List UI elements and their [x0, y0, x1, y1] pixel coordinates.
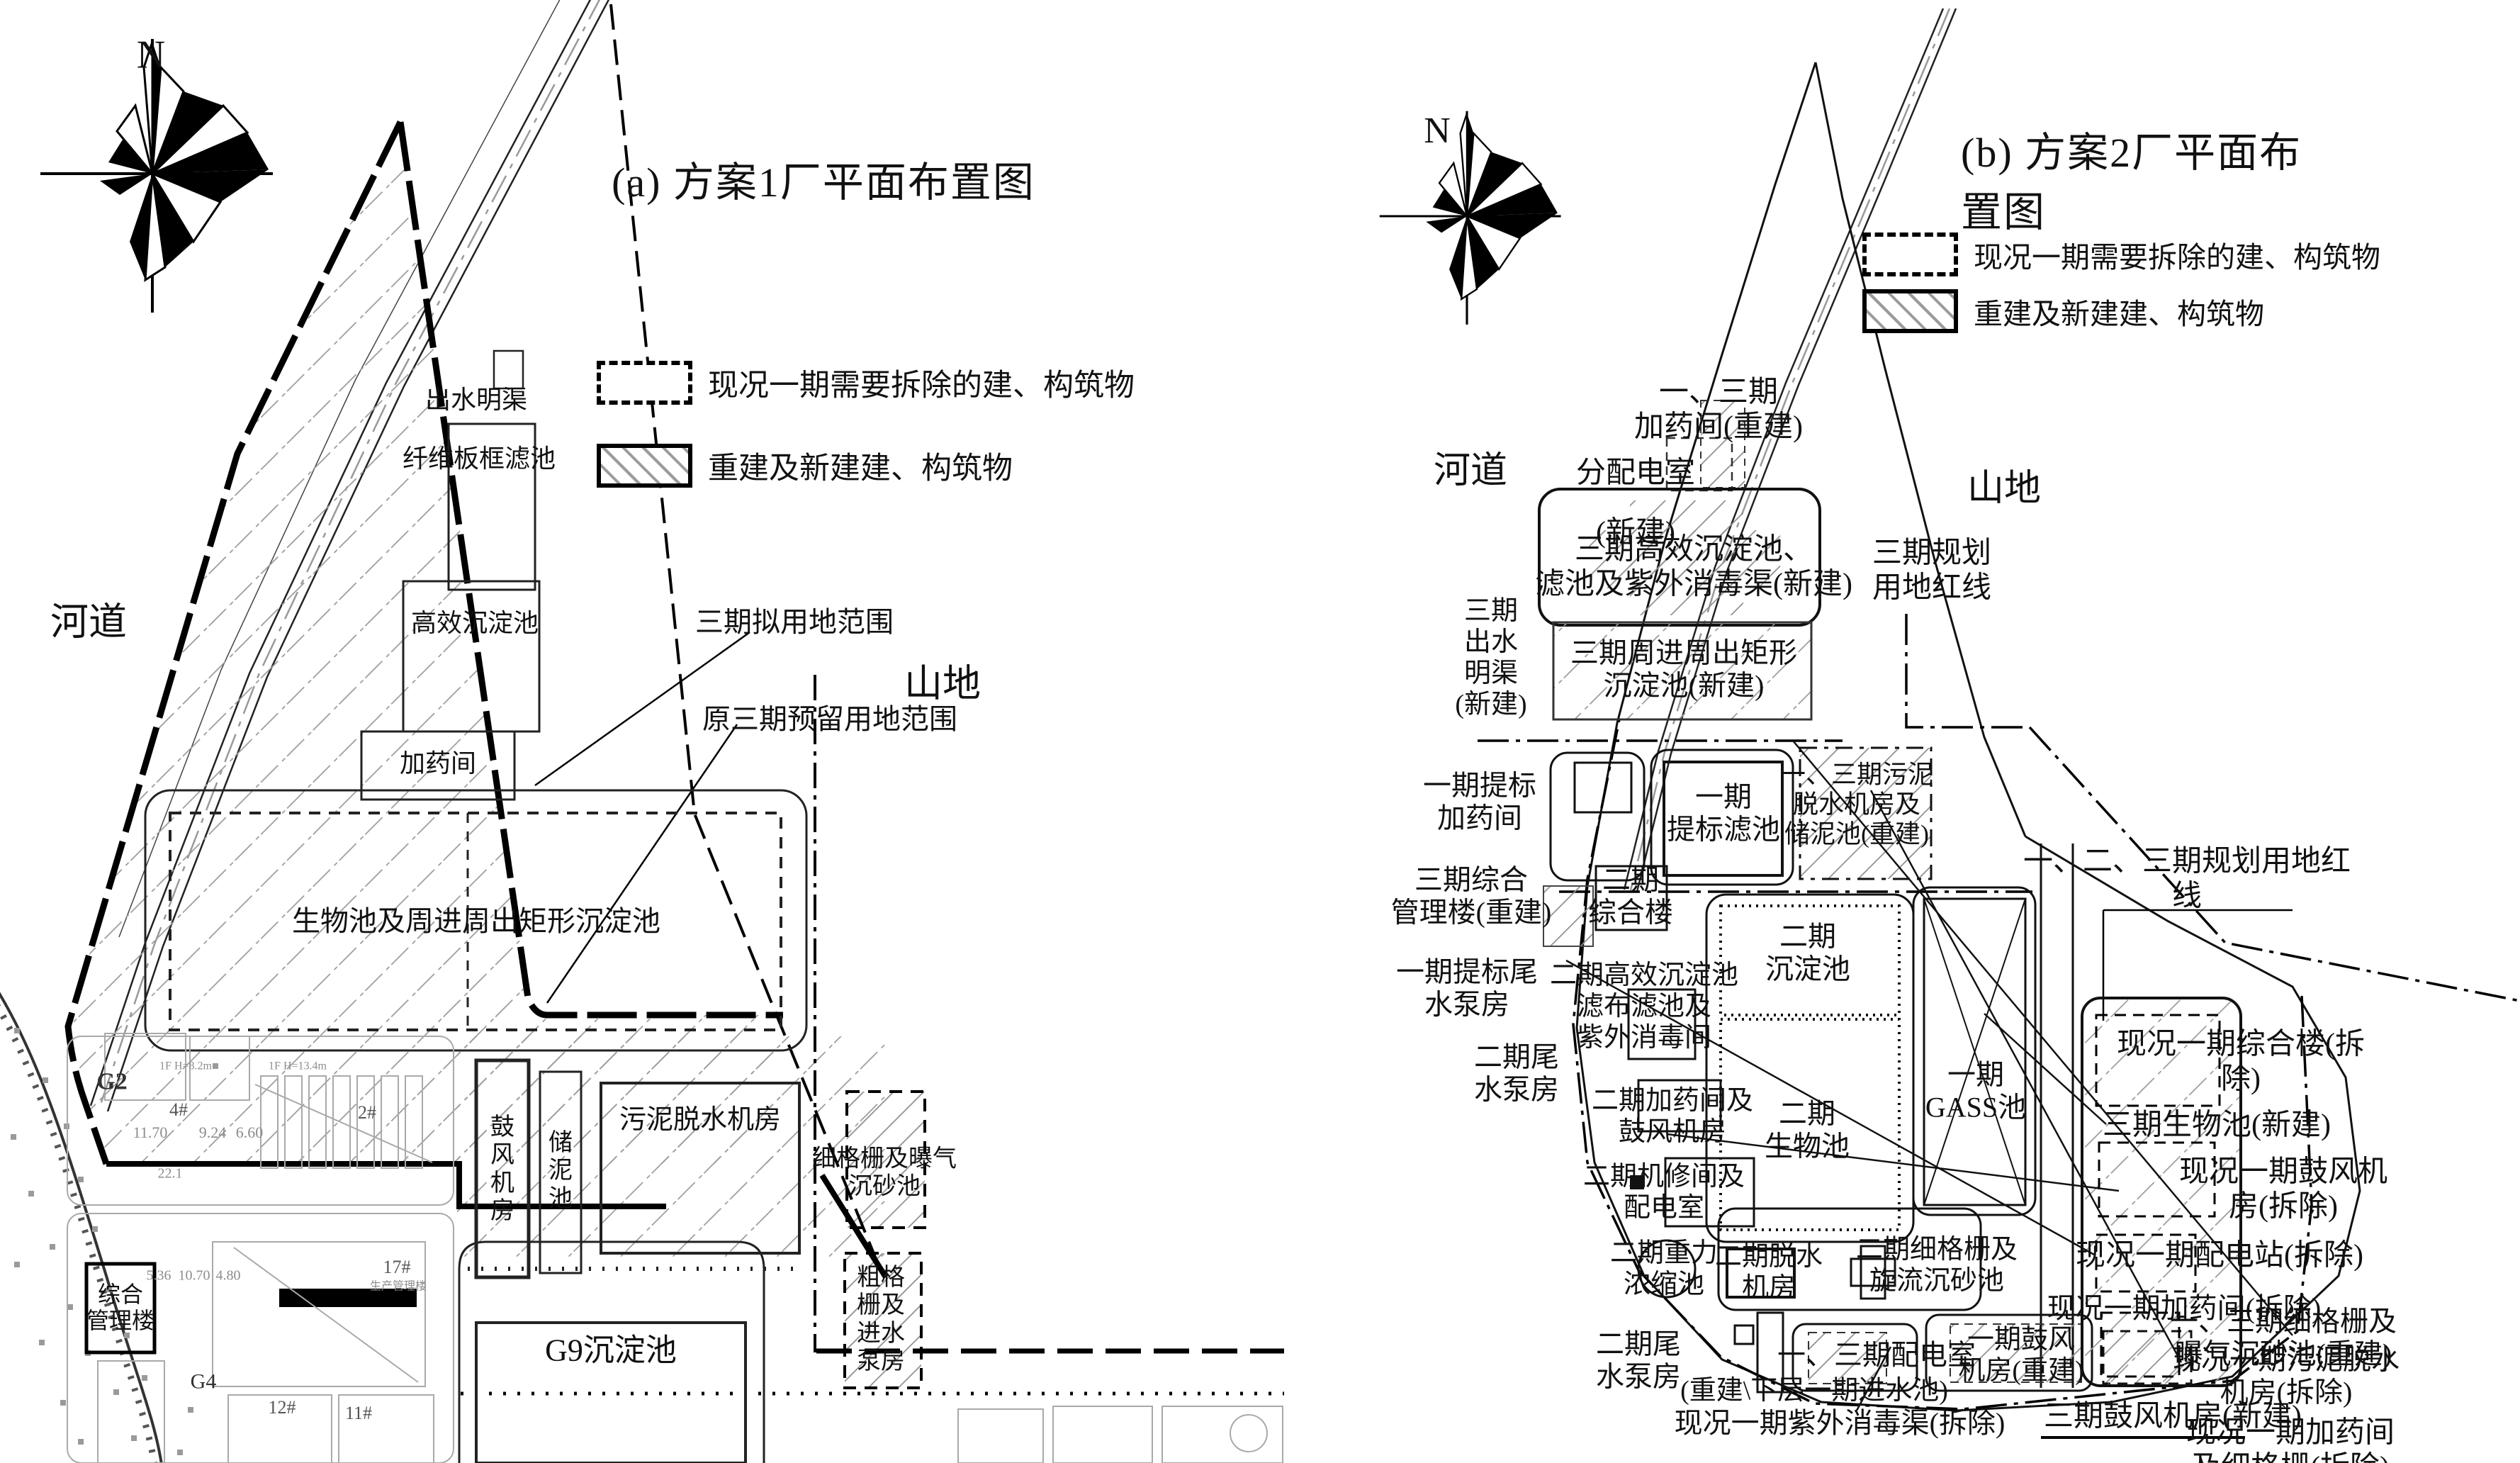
legend-a-rebuild: 重建及新建建、构筑物: [597, 444, 1013, 488]
rebuild-swatch-icon: [597, 444, 692, 488]
p2-admin-outline: [1596, 866, 1667, 930]
panel-b-map: [1380, 9, 2520, 1437]
legend-b-demolish: 现况一期需要拆除的建、构筑物: [1862, 232, 2380, 276]
g9-tank-outline: [476, 1323, 746, 1463]
upgrade-row: [1551, 750, 1793, 885]
admin-building-outline: [86, 1264, 154, 1352]
small-structure: [1630, 1175, 1644, 1189]
outlet-structure: [494, 351, 523, 388]
fine-screen-hatch: [847, 1092, 925, 1228]
rect-tank-new-hatch: [1553, 622, 1811, 719]
legend-label: 现况一期需要拆除的建、构筑物: [708, 361, 1135, 405]
panel-b-title: (b) 方案2厂平面布置图: [1961, 119, 2334, 238]
legend-b-rebuild: 重建及新建建、构筑物: [1862, 289, 2264, 333]
legend-label: 重建及新建建、构筑物: [708, 444, 1013, 488]
panel-a-title: (a) 方案1厂平面布置图: [612, 149, 1035, 208]
plant-layout-figure: (a) 方案1厂平面布置图 (b) 方案2厂平面布置图 现况一期需要拆除的建、构…: [0, 0, 2520, 1463]
north-compass-icon: [40, 39, 273, 313]
phase2-structures: [1629, 887, 2035, 1310]
rebuild-swatch-icon: [1862, 289, 1958, 333]
p1-blower-rebuild-hatch: [1950, 1324, 2081, 1382]
planning-redline: [1478, 614, 2520, 1409]
legend-label: 现况一期需要拆除的建、构筑物: [1974, 233, 2380, 276]
p3-admin-hatch: [1543, 886, 1593, 946]
north-compass-icon: [1380, 111, 1561, 325]
demolish-swatch-icon: [597, 361, 692, 405]
legend-a-demolish: 现况一期需要拆除的建、构筑物: [597, 361, 1135, 405]
panel-a-map: [0, 0, 1284, 1463]
road-bar: [279, 1289, 417, 1307]
dosing-rebuild-hatch: [1701, 400, 1745, 488]
legend-label: 重建及新建建、构筑物: [1974, 290, 2264, 332]
g9-area-outline: [459, 1242, 764, 1463]
sludge-rebuild-hatch: [1800, 748, 1931, 879]
high-eff-hatch-2: [1589, 530, 1780, 588]
rebuild-block-hatch: [457, 1036, 886, 1260]
demolish-swatch-icon: [1862, 232, 1958, 276]
